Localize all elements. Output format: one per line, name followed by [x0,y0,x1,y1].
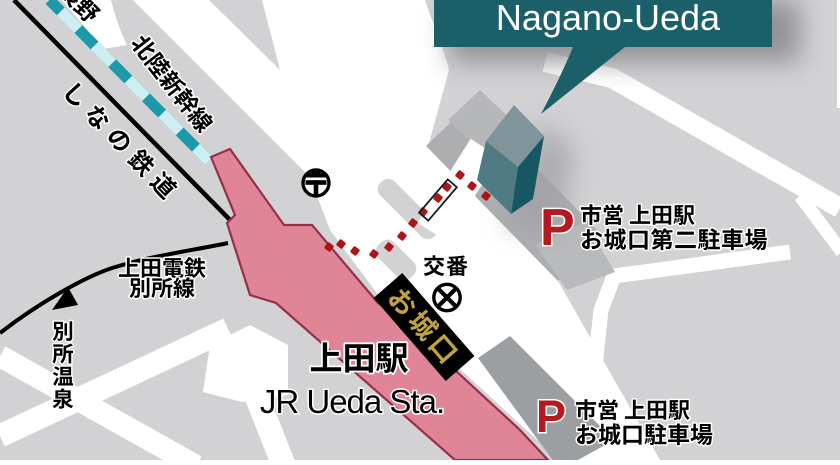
svg-text:JR Ueda Sta.: JR Ueda Sta. [260,383,444,420]
svg-text:P: P [540,199,575,257]
svg-text:Nagano-Ueda: Nagano-Ueda [496,0,721,38]
svg-text:P: P [536,391,566,442]
